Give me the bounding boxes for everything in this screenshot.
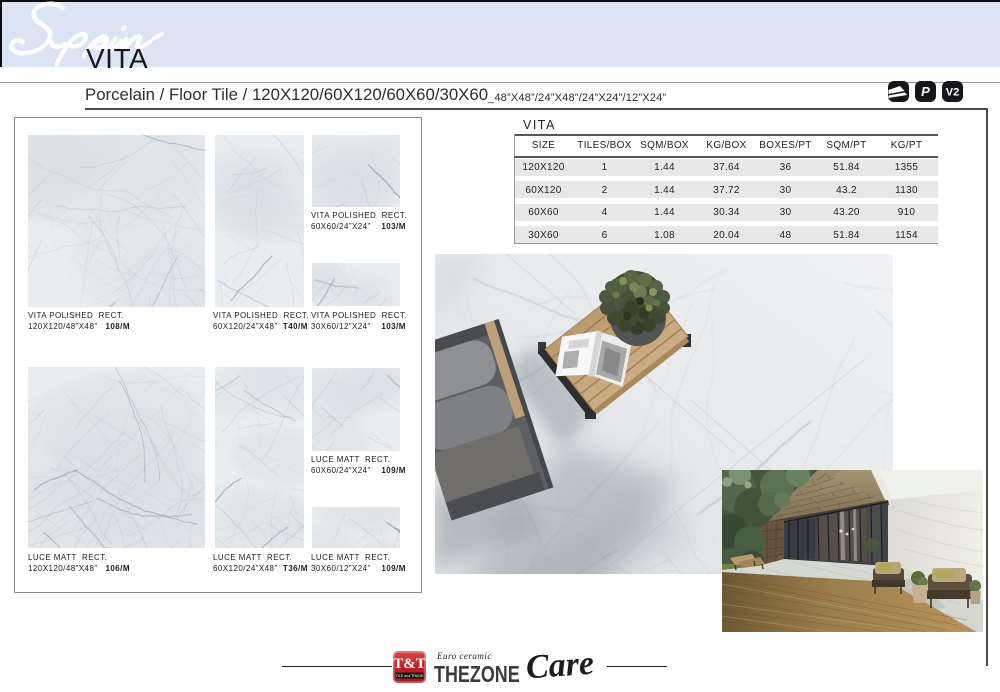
svg-text:TILE and TRADE: TILE and TRADE [396, 674, 424, 678]
svg-text:T&T: T&T [393, 656, 426, 672]
svg-text:V2: V2 [946, 87, 959, 99]
svg-text:P: P [921, 84, 930, 99]
